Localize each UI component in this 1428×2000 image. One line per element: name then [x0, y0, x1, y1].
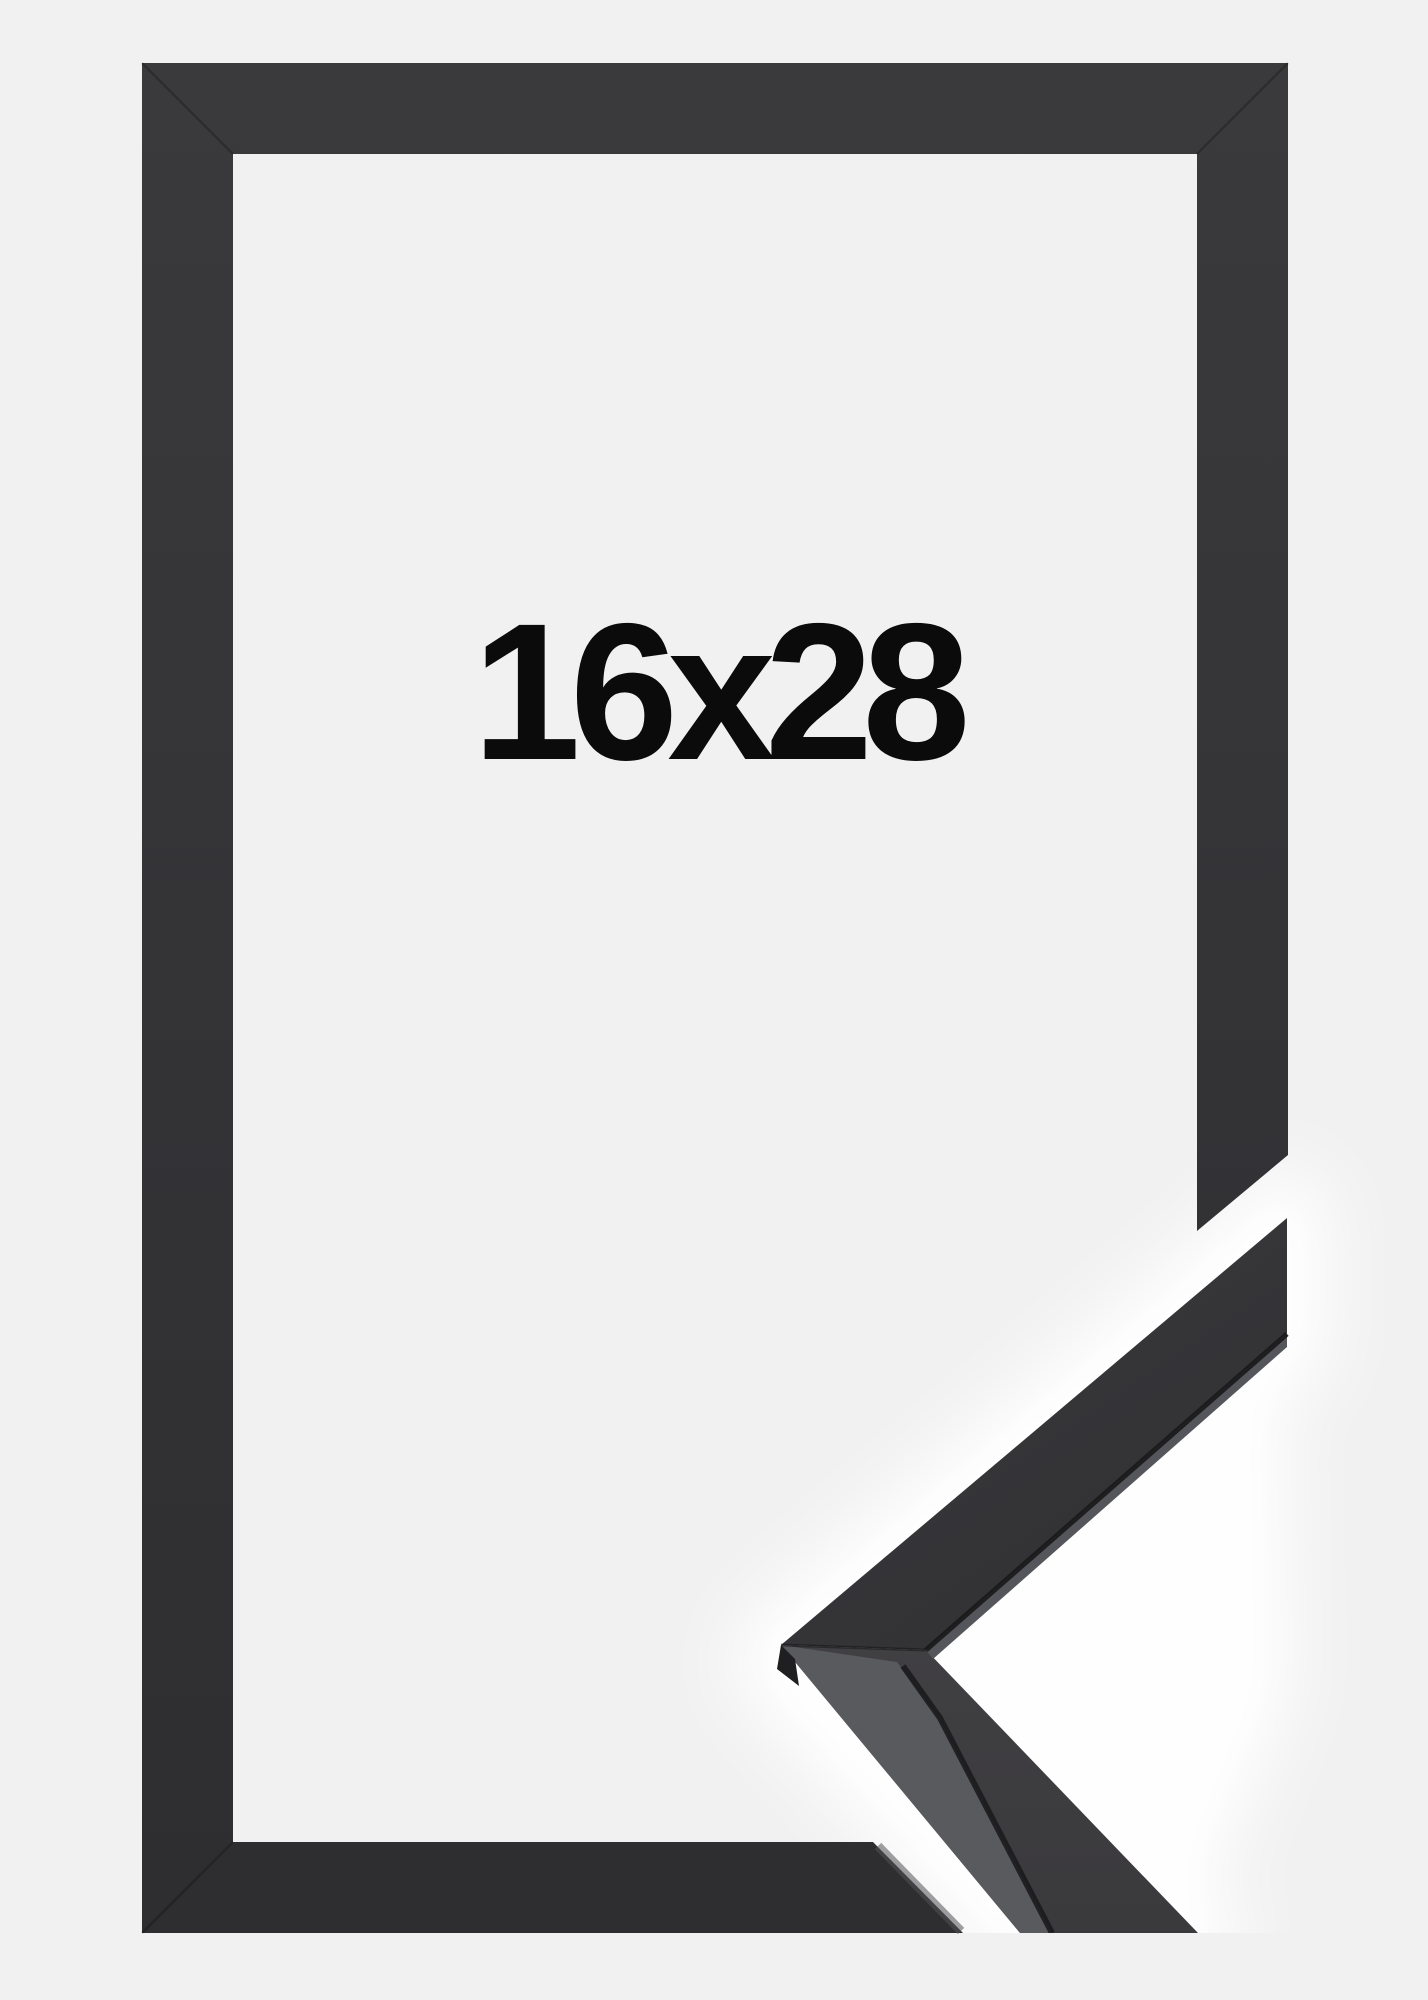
photo-canvas [0, 0, 1428, 2000]
product-photo: 16x28 [0, 0, 1428, 2000]
size-label: 16x28 [472, 580, 959, 804]
